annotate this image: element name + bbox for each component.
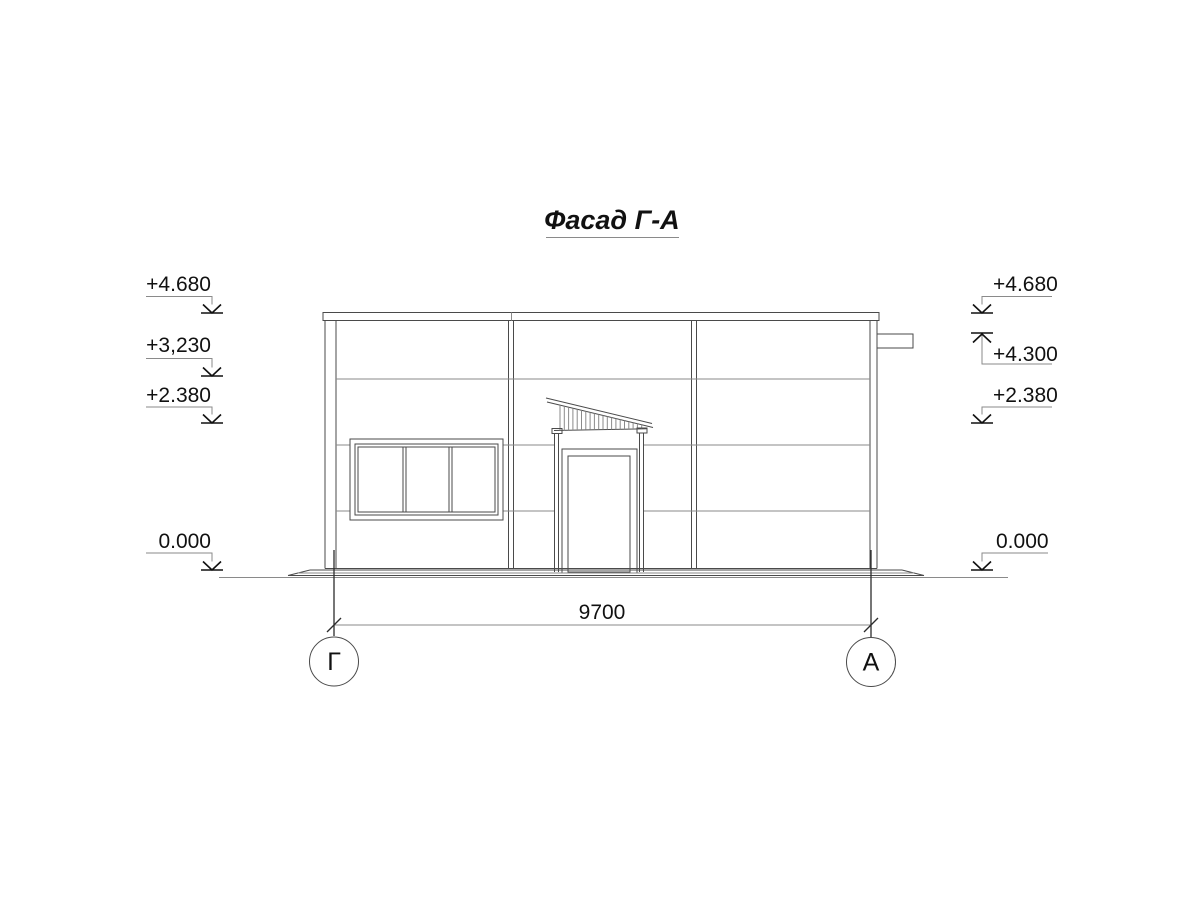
- level-arrow-icon: [201, 368, 223, 377]
- axis-label-right: А: [863, 649, 880, 677]
- drain-scupper-box: [877, 334, 913, 348]
- level-label: +4.300: [993, 343, 1058, 366]
- level-leader: [146, 297, 212, 305]
- level-arrow-icon: [971, 305, 993, 314]
- door-leaf: [568, 456, 630, 572]
- level-leader: [146, 407, 212, 415]
- canopy-post-right: [640, 433, 644, 572]
- window-opening: [350, 439, 503, 520]
- axis-label-left: Г: [327, 648, 341, 676]
- elevation-mark-left-1: +4.680: [146, 273, 223, 313]
- drawing-canvas: Фасад Г-А: [0, 0, 1200, 900]
- level-label: 0.000: [158, 530, 211, 553]
- entrance-door: [562, 449, 637, 573]
- window-mullions: [403, 447, 452, 512]
- building-facade: [323, 313, 879, 569]
- dimension: 9700: [327, 601, 878, 632]
- level-arrow-icon: [201, 415, 223, 424]
- facade-drawing: Фасад Г-А: [0, 0, 1200, 900]
- level-arrow-icon: [971, 562, 993, 571]
- elevation-mark-right-1: +4.680: [971, 273, 1058, 313]
- dimension-value: 9700: [579, 601, 626, 624]
- canopy-top-chord-inner: [547, 402, 653, 428]
- parapet-band: [323, 313, 879, 321]
- door-frame: [562, 449, 637, 573]
- level-label: +2.380: [146, 384, 211, 407]
- elevation-mark-left-2: +3,230: [146, 334, 223, 376]
- level-leader: [146, 359, 212, 368]
- level-label: +2.380: [993, 384, 1058, 407]
- window-frame-outer: [355, 444, 498, 515]
- level-label: 0.000: [996, 530, 1049, 553]
- canopy-post-left: [555, 434, 559, 573]
- level-arrow-icon: [201, 562, 223, 571]
- level-arrow-icon: [201, 305, 223, 314]
- level-arrow-icon: [971, 415, 993, 424]
- drawing-title-block: Фасад Г-А: [544, 205, 679, 238]
- level-label: +4.680: [993, 273, 1058, 296]
- level-leader: [982, 407, 1052, 415]
- level-label: +3,230: [146, 334, 211, 357]
- elevation-mark-right-3: +2.380: [971, 384, 1058, 423]
- elevation-mark-left-0: 0.000: [146, 530, 223, 570]
- level-leader: [982, 553, 1048, 562]
- elevation-mark-right-2: +4.300: [971, 333, 1058, 366]
- level-label: +4.680: [146, 273, 211, 296]
- level-leader: [146, 553, 212, 562]
- elevation-mark-right-0: 0.000: [971, 530, 1049, 570]
- plinth: [288, 570, 924, 576]
- canopy-bottom-edge: [554, 429, 647, 431]
- drawing-title: Фасад Г-А: [544, 205, 679, 235]
- window: [350, 439, 503, 520]
- elevation-mark-left-3: +2.380: [146, 384, 223, 423]
- level-leader: [982, 297, 1052, 305]
- window-frame-inner: [358, 447, 495, 512]
